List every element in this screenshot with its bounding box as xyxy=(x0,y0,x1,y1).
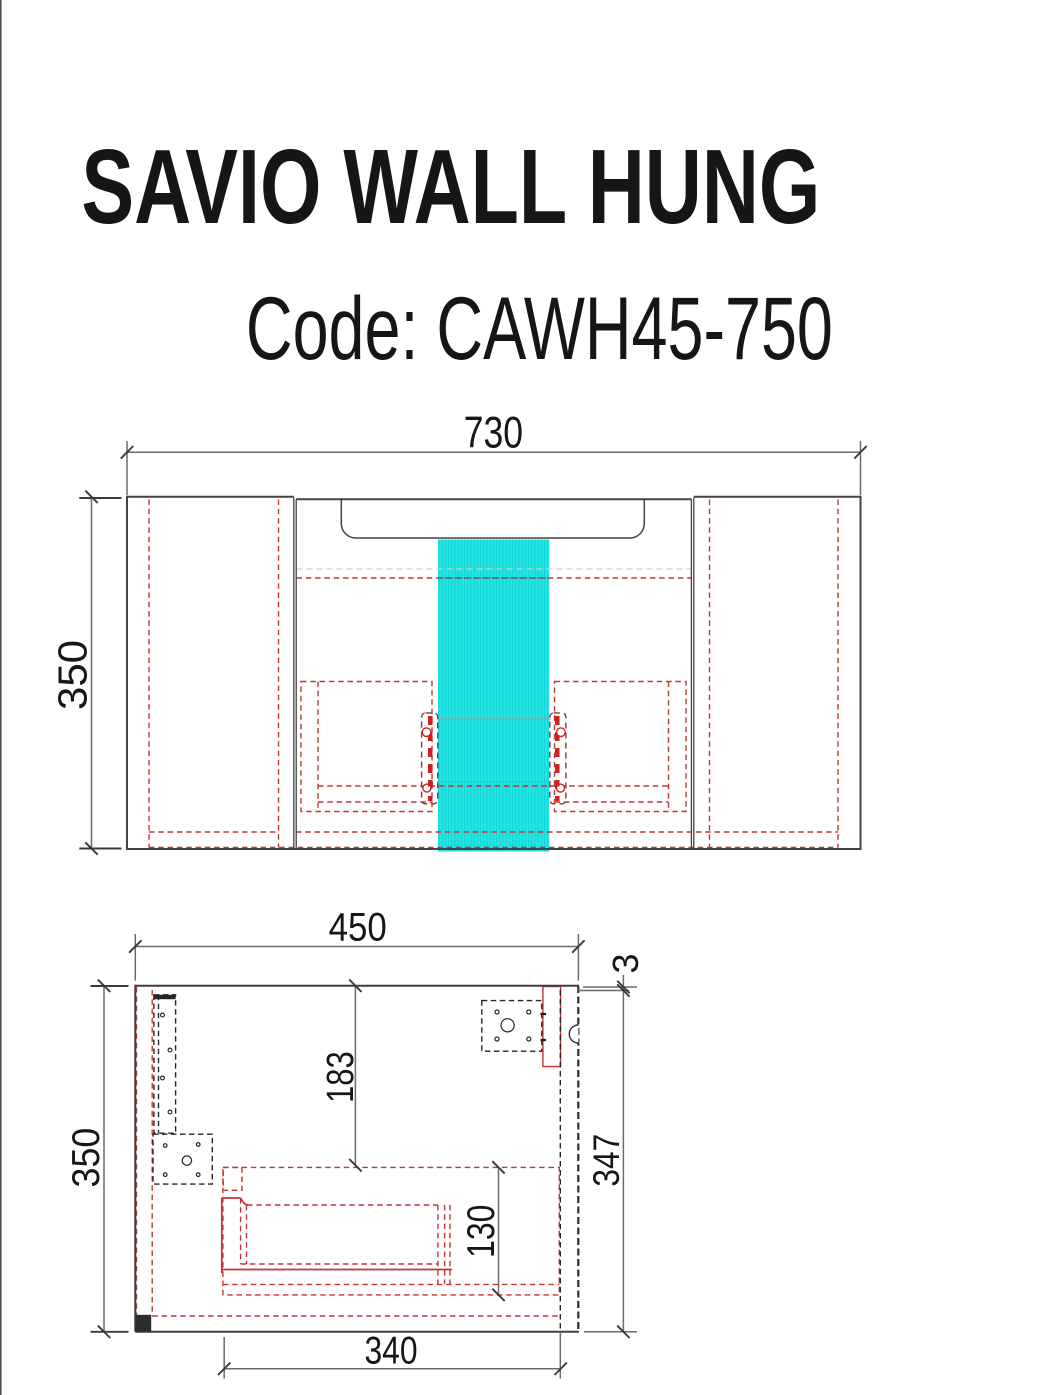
svg-text:730: 730 xyxy=(464,409,523,458)
svg-text:347: 347 xyxy=(585,1134,627,1187)
svg-text:450: 450 xyxy=(329,905,387,950)
svg-text:350: 350 xyxy=(50,640,96,710)
svg-text:SAVIO WALL HUNG: SAVIO WALL HUNG xyxy=(81,128,820,246)
svg-text:183: 183 xyxy=(320,1051,362,1103)
svg-text:130: 130 xyxy=(460,1205,503,1258)
svg-text:Code: CAWH45-750: Code: CAWH45-750 xyxy=(246,278,833,378)
svg-text:350: 350 xyxy=(65,1128,108,1188)
svg-text:340: 340 xyxy=(364,1329,417,1372)
svg-text:3: 3 xyxy=(606,954,646,974)
